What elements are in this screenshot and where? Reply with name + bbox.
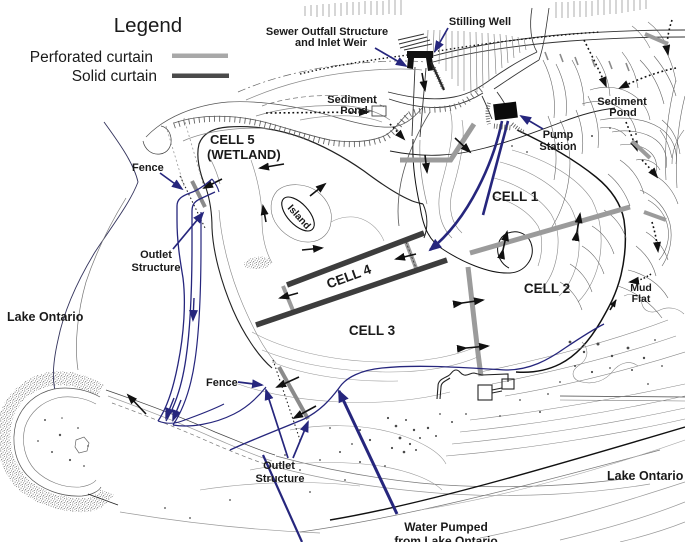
svg-text:Fence: Fence [206,377,238,389]
svg-text:CELL 3: CELL 3 [349,323,396,338]
svg-text:Pump: Pump [543,129,574,141]
svg-text:CELL 2: CELL 2 [524,281,570,296]
svg-text:Lake Ontario: Lake Ontario [607,469,684,483]
svg-text:CELL 5: CELL 5 [210,132,255,147]
svg-text:(WETLAND): (WETLAND) [207,147,281,162]
svg-text:Stilling Well: Stilling Well [449,16,511,28]
svg-text:Outlet: Outlet [263,460,295,472]
svg-text:Pond: Pond [609,107,637,119]
svg-text:and Inlet Weir: and Inlet Weir [295,37,368,49]
svg-text:Flat: Flat [632,293,651,305]
svg-text:from Lake Ontario: from Lake Ontario [394,534,497,542]
svg-text:Lake Ontario: Lake Ontario [7,310,84,324]
svg-text:CELL 1: CELL 1 [492,189,539,204]
svg-text:Outlet: Outlet [140,249,172,261]
svg-text:Solid curtain: Solid curtain [72,68,157,85]
svg-text:Pond: Pond [340,105,368,117]
svg-text:Perforated curtain: Perforated curtain [30,49,153,66]
svg-text:Structure: Structure [132,262,181,274]
svg-text:Station: Station [539,141,577,153]
svg-text:Legend: Legend [114,14,182,37]
svg-text:Water Pumped: Water Pumped [404,520,488,534]
svg-text:Fence: Fence [132,162,164,174]
svg-text:Structure: Structure [256,473,305,485]
